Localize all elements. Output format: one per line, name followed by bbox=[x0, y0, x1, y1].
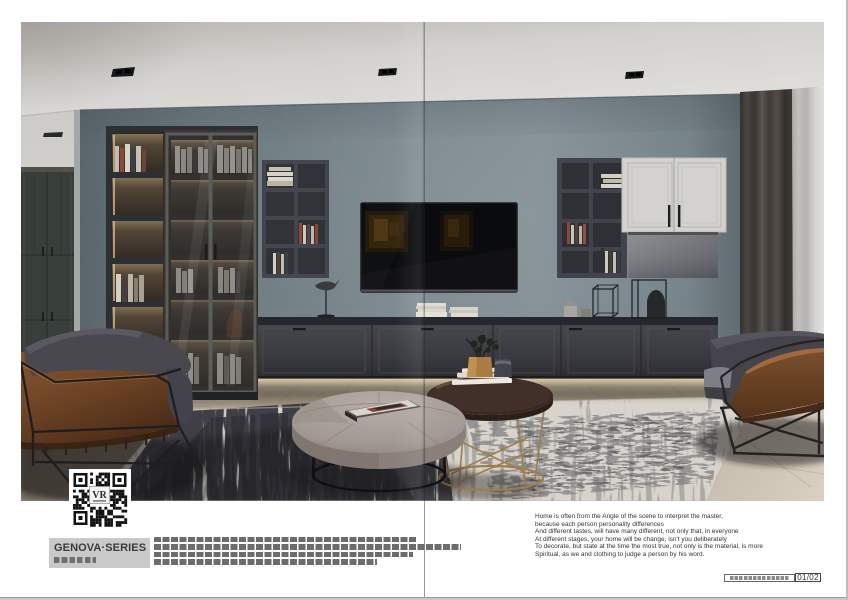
svg-text:VR: VR bbox=[92, 490, 107, 501]
